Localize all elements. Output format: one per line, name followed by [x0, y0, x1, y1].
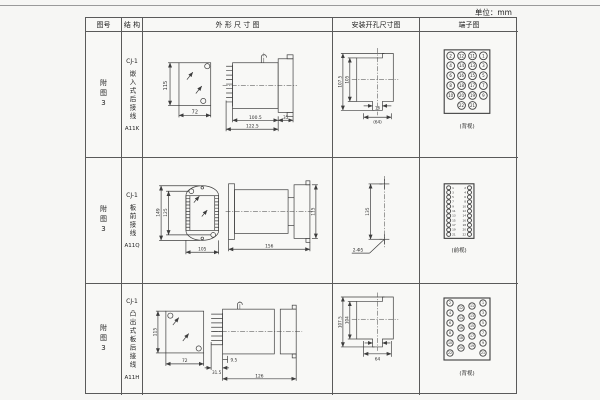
svg-text:1: 1: [452, 186, 454, 190]
svg-text:20: 20: [459, 346, 463, 350]
header-outline: 外 形 尺 寸 图: [143, 18, 333, 32]
svg-text:5: 5: [452, 195, 454, 199]
dim-spacing-r2: 135: [365, 207, 371, 216]
dim-vouter-r1: 107.5: [337, 75, 342, 87]
dim-len1-r1: 100.5: [249, 115, 262, 121]
view-label-r3: (背视): [459, 369, 474, 377]
svg-text:19: 19: [470, 344, 474, 348]
svg-text:18: 18: [459, 336, 463, 340]
dim-offset-r3: 9.5: [231, 357, 238, 362]
header-structure: 结 构: [122, 18, 143, 32]
svg-text:17: 17: [470, 334, 474, 338]
svg-text:18: 18: [462, 223, 466, 227]
svg-text:1: 1: [482, 301, 484, 305]
svg-text:10: 10: [462, 204, 466, 208]
outline-drawing-row1: 115 72 100.5 35 122.5: [143, 32, 332, 157]
svg-text:8: 8: [449, 83, 452, 88]
svg-text:7: 7: [452, 200, 454, 204]
svg-text:15: 15: [470, 73, 476, 78]
svg-text:5: 5: [482, 321, 484, 325]
svg-text:12: 12: [459, 306, 463, 310]
svg-text:17: 17: [452, 223, 456, 227]
header-fig-no: 图号: [86, 18, 122, 32]
svg-text:16: 16: [462, 218, 466, 222]
mount-type-row2: 板前接线: [127, 204, 137, 238]
svg-text:19: 19: [452, 228, 456, 232]
svg-text:4: 4: [449, 63, 452, 68]
svg-text:15: 15: [452, 218, 456, 222]
svg-text:17: 17: [470, 83, 476, 88]
dim-front-width-r3: 72: [182, 358, 188, 364]
mounting-cell-row3: 107.5 104 64: [333, 284, 420, 395]
model-row1: CJ-1: [126, 58, 138, 65]
header-mounting: 安装开孔尺寸图: [333, 18, 420, 32]
outline-cell-row1: 115 72 100.5 35 122.5: [143, 32, 333, 158]
structure-cell-row3: CJ-1 凸出式板后接线 A11H: [122, 284, 143, 395]
mounting-cell-row1: 107.5 105 16 (64): [333, 32, 420, 158]
svg-text:13: 13: [452, 214, 456, 218]
svg-text:6: 6: [449, 321, 451, 325]
dim-bodylen-r3: 126: [255, 373, 264, 379]
mount-type-row3: 凸出式板后接线: [127, 310, 137, 370]
svg-text:21: 21: [481, 351, 485, 355]
svg-text:21: 21: [452, 232, 456, 236]
svg-text:3: 3: [452, 190, 454, 194]
svg-text:7: 7: [482, 331, 484, 335]
fig-no-cell-row3: 附图3: [86, 284, 122, 395]
svg-text:16: 16: [459, 326, 463, 330]
svg-text:21: 21: [470, 103, 476, 108]
svg-text:1: 1: [482, 53, 485, 58]
svg-text:20: 20: [462, 228, 466, 232]
terminal-diagram-row3: 24681022121416182011131517191357921 (背视): [420, 284, 518, 395]
svg-text:22: 22: [459, 103, 465, 108]
svg-text:9: 9: [482, 93, 485, 98]
mount-type-row1: 嵌入式后接线: [127, 70, 137, 121]
svg-text:13: 13: [470, 314, 474, 318]
outline-cell-row3: 115 72 31.5 9.5 126: [143, 284, 333, 395]
svg-text:4: 4: [449, 311, 451, 315]
svg-text:9: 9: [452, 204, 454, 208]
svg-text:11: 11: [470, 53, 476, 58]
svg-text:4: 4: [464, 190, 466, 194]
dim-front-height-r3: 115: [152, 328, 158, 337]
view-label-r1: (背视): [459, 122, 474, 130]
svg-text:2: 2: [464, 186, 466, 190]
svg-text:15: 15: [470, 324, 474, 328]
dim-pinlen-r3: 31.5: [212, 370, 222, 375]
svg-text:12: 12: [462, 209, 466, 213]
mounting-drawing-row2: 135 2-Φ5: [333, 158, 419, 283]
dimension-table: 图号 结 构 外 形 尺 寸 图 安装开孔尺寸图 端子图 附图3 CJ-1 嵌入…: [85, 17, 517, 394]
svg-text:19: 19: [470, 93, 476, 98]
mounting-drawing-row3: 107.5 104 64: [333, 284, 419, 395]
svg-text:10: 10: [448, 341, 452, 345]
top-rule: [0, 5, 600, 6]
terminal-diagram-row2: 12345678910111213141516171819202122 (前视): [420, 158, 518, 283]
svg-text:3: 3: [482, 63, 485, 68]
dim-sideh-r2: 115: [310, 207, 316, 216]
model-row3: CJ-1: [126, 298, 138, 305]
svg-text:14: 14: [459, 316, 463, 320]
code-row1: A11K: [125, 126, 139, 132]
fig-no-row2: 附图3: [99, 205, 109, 236]
fig-no-cell-row1: 附图3: [86, 32, 122, 158]
svg-text:14: 14: [462, 214, 466, 218]
dim-sidelen-r2: 156: [265, 243, 274, 249]
svg-text:11: 11: [470, 304, 474, 308]
structure-cell-row1: CJ-1 嵌入式后接线 A11K: [122, 32, 143, 158]
svg-text:22: 22: [462, 232, 466, 236]
dim-slot-r1: 16: [375, 105, 381, 110]
dim-front-width-r1: 72: [192, 109, 198, 115]
svg-text:16: 16: [459, 73, 465, 78]
terminal-cell-row3: 24681022121416182011131517191357921 (背视): [420, 284, 518, 395]
svg-text:8: 8: [464, 200, 466, 204]
svg-text:3: 3: [482, 311, 484, 315]
svg-text:20: 20: [459, 93, 465, 98]
fig-no-row3: 附图3: [99, 324, 109, 355]
svg-text:2: 2: [449, 53, 452, 58]
svg-text:11: 11: [452, 209, 456, 213]
dim-vouter-r3: 107.5: [337, 316, 342, 328]
outline-cell-row2: 149 125 105 156 115: [143, 158, 333, 284]
fig-no-cell-row2: 附图3: [86, 158, 122, 284]
svg-text:5: 5: [482, 73, 485, 78]
svg-text:6: 6: [449, 73, 452, 78]
dim-len2-r1: 122.5: [246, 124, 259, 130]
dim-span-r3: 64: [375, 357, 381, 362]
header-terminal: 端子图: [420, 18, 518, 32]
view-label-r2: (前视): [452, 246, 467, 254]
svg-text:13: 13: [470, 63, 476, 68]
structure-cell-row2: CJ-1 板前接线 A11Q: [122, 158, 143, 284]
svg-text:18: 18: [459, 83, 465, 88]
svg-text:2: 2: [449, 301, 451, 305]
fig-no-row1: 附图3: [99, 79, 109, 110]
terminal-diagram-row1: 21211141413361615581817710201992221 (背视): [420, 32, 518, 157]
dim-len3-r1: 35: [283, 115, 289, 120]
svg-text:10: 10: [448, 93, 454, 98]
svg-text:6: 6: [464, 195, 466, 199]
dim-width-r2: 105: [198, 246, 207, 252]
dim-front-height-r1: 115: [163, 81, 169, 90]
dim-span-r1: (64): [373, 120, 382, 125]
dim-vinner-r3: 104: [344, 316, 349, 324]
dim-vinner-r1: 105: [344, 75, 349, 83]
svg-text:8: 8: [449, 331, 451, 335]
svg-text:7: 7: [482, 83, 485, 88]
mounting-drawing-row1: 107.5 105 16 (64): [333, 32, 419, 157]
code-row2: A11Q: [124, 243, 139, 249]
dim-hinner-r2: 125: [163, 208, 169, 217]
mounting-cell-row2: 135 2-Φ5: [333, 158, 420, 284]
hole-note-r2: 2-Φ5: [353, 248, 364, 254]
outline-drawing-row2: 149 125 105 156 115: [143, 158, 332, 283]
outline-drawing-row3: 115 72 31.5 9.5 126: [143, 284, 332, 395]
svg-text:14: 14: [459, 63, 465, 68]
dim-houter-r2: 149: [156, 208, 162, 217]
model-row2: CJ-1: [126, 192, 138, 199]
terminal-cell-row1: 21211141413361615581817710201992221 (背视): [420, 32, 518, 158]
svg-text:22: 22: [448, 351, 452, 355]
svg-text:12: 12: [459, 53, 465, 58]
code-row3: A11H: [125, 375, 140, 381]
scanned-spec-sheet: 单位：mm 图号 结 构 外 形 尺 寸 图 安装开孔尺寸图 端子图 附图3 C…: [0, 0, 600, 400]
terminal-cell-row2: 12345678910111213141516171819202122 (前视): [420, 158, 518, 284]
svg-text:9: 9: [482, 341, 484, 345]
